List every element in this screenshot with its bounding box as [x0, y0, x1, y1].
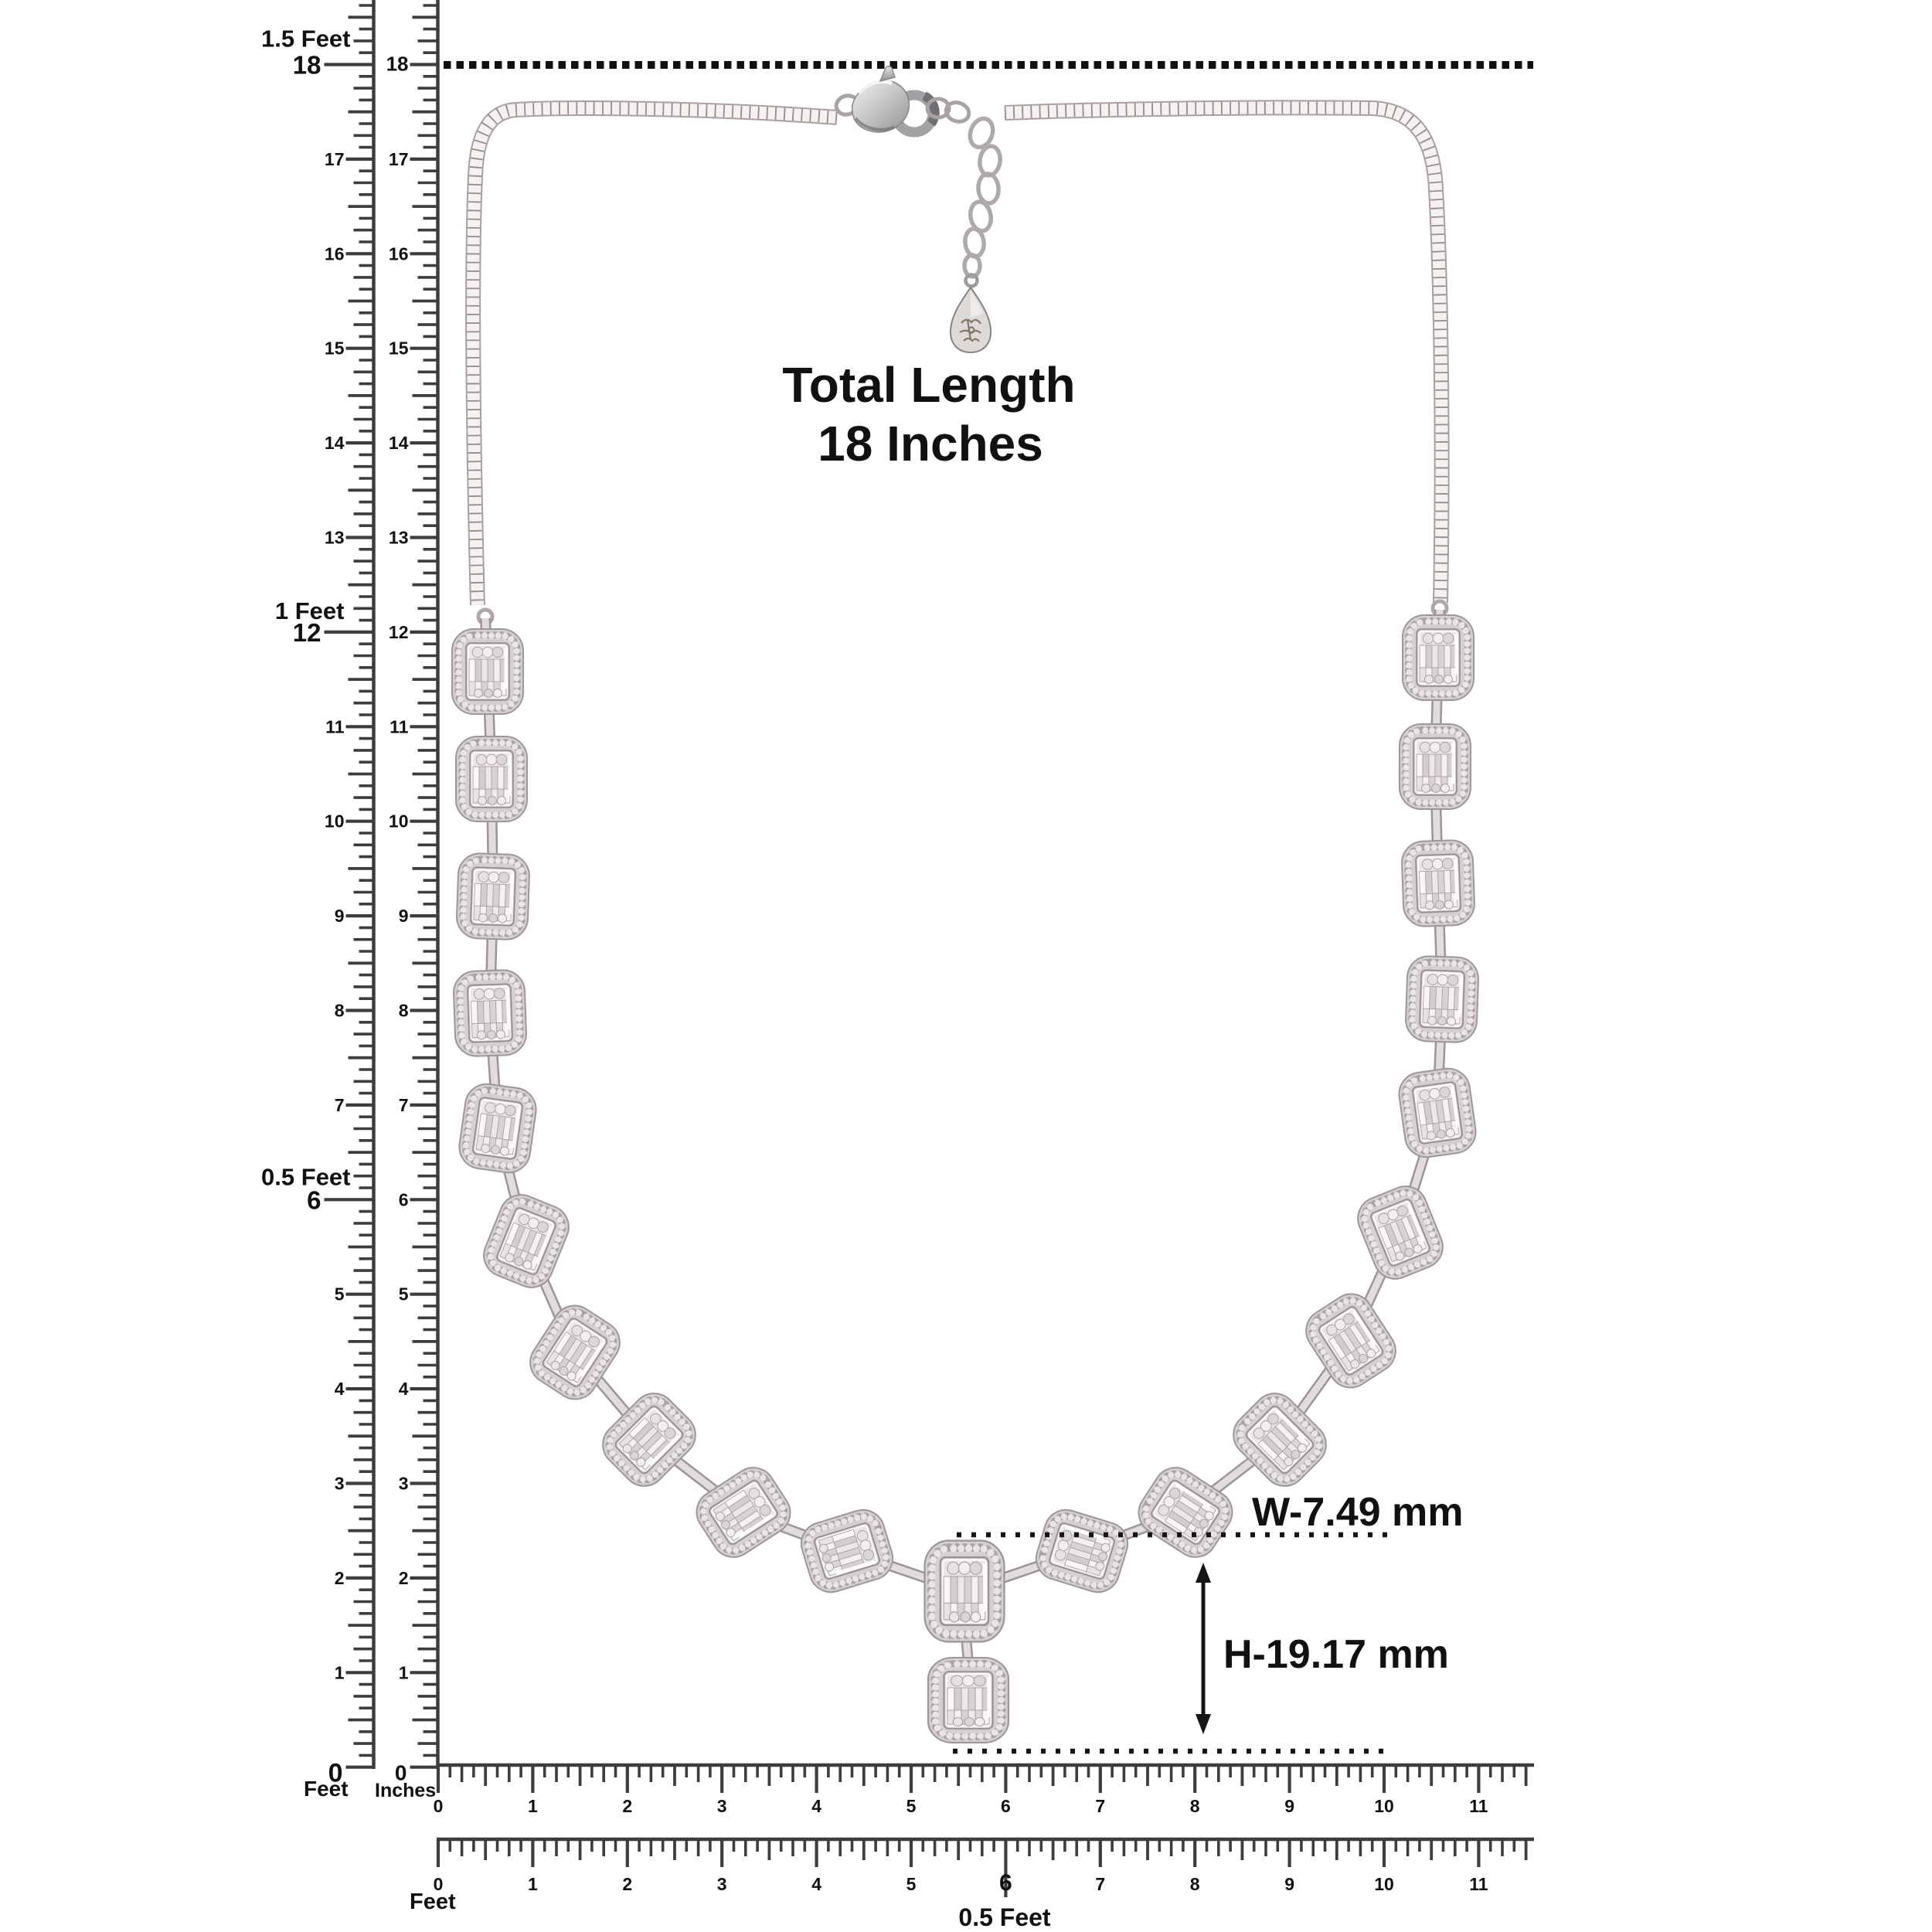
svg-text:13: 13 — [389, 528, 409, 548]
svg-text:5: 5 — [906, 1874, 917, 1894]
svg-text:17: 17 — [389, 149, 409, 169]
svg-text:0.5 Feet: 0.5 Feet — [958, 1903, 1051, 1931]
svg-text:3: 3 — [335, 1474, 345, 1494]
svg-text:7: 7 — [1095, 1796, 1105, 1816]
svg-text:1: 1 — [335, 1662, 345, 1682]
svg-text:Total Length: Total Length — [782, 357, 1075, 413]
svg-text:10: 10 — [325, 811, 345, 832]
svg-text:15: 15 — [389, 338, 409, 359]
svg-text:11: 11 — [325, 716, 345, 736]
svg-text:1: 1 — [399, 1662, 409, 1682]
svg-text:12: 12 — [389, 622, 409, 642]
svg-text:18 Inches: 18 Inches — [818, 416, 1043, 471]
svg-text:1: 1 — [528, 1796, 538, 1816]
svg-text:6: 6 — [999, 1870, 1012, 1896]
svg-text:Feet: Feet — [410, 1889, 456, 1914]
svg-text:16: 16 — [325, 243, 345, 264]
svg-text:2: 2 — [622, 1796, 632, 1816]
svg-text:0.5 Feet: 0.5 Feet — [261, 1163, 350, 1190]
svg-text:2: 2 — [622, 1874, 632, 1894]
svg-text:1 Feet: 1 Feet — [275, 597, 345, 624]
svg-text:9: 9 — [1284, 1874, 1294, 1894]
svg-text:11: 11 — [1469, 1796, 1488, 1816]
svg-text:3: 3 — [399, 1474, 409, 1494]
svg-text:9: 9 — [335, 906, 345, 926]
svg-text:8: 8 — [335, 1001, 345, 1021]
svg-text:8: 8 — [1190, 1874, 1200, 1894]
svg-text:14: 14 — [325, 433, 345, 453]
svg-text:8: 8 — [399, 1001, 409, 1021]
svg-text:2: 2 — [399, 1568, 409, 1588]
svg-text:1.5 Feet: 1.5 Feet — [261, 26, 350, 53]
svg-text:7: 7 — [1095, 1874, 1105, 1894]
svg-text:10: 10 — [1374, 1796, 1394, 1816]
svg-text:7: 7 — [335, 1095, 345, 1115]
svg-text:5: 5 — [399, 1284, 409, 1304]
svg-text:3: 3 — [717, 1796, 727, 1816]
svg-text:0: 0 — [434, 1796, 444, 1816]
svg-text:18: 18 — [386, 53, 409, 76]
svg-text:1: 1 — [528, 1874, 538, 1894]
svg-text:Inches: Inches — [375, 1780, 436, 1801]
svg-text:10: 10 — [389, 811, 409, 832]
svg-text:7: 7 — [399, 1095, 409, 1115]
svg-text:17: 17 — [325, 149, 345, 169]
svg-text:6: 6 — [1001, 1796, 1011, 1816]
svg-text:5: 5 — [906, 1796, 917, 1816]
svg-text:8: 8 — [1190, 1796, 1200, 1816]
svg-text:13: 13 — [325, 528, 345, 548]
svg-text:3: 3 — [717, 1874, 727, 1894]
svg-text:14: 14 — [389, 433, 409, 453]
svg-text:4: 4 — [811, 1874, 821, 1894]
svg-text:5: 5 — [335, 1284, 345, 1304]
svg-text:18: 18 — [293, 51, 321, 80]
svg-text:4: 4 — [399, 1379, 409, 1399]
svg-text:10: 10 — [1374, 1874, 1394, 1894]
svg-text:11: 11 — [1469, 1874, 1488, 1894]
svg-text:6: 6 — [399, 1189, 409, 1209]
svg-text:H-19.17 mm: H-19.17 mm — [1223, 1632, 1449, 1677]
svg-text:16: 16 — [389, 243, 409, 264]
svg-text:11: 11 — [389, 716, 409, 736]
svg-text:W-7.49 mm: W-7.49 mm — [1252, 1490, 1463, 1535]
svg-text:4: 4 — [811, 1796, 821, 1816]
svg-text:2: 2 — [335, 1568, 345, 1588]
svg-text:Feet: Feet — [304, 1777, 349, 1801]
svg-text:9: 9 — [1284, 1796, 1294, 1816]
svg-text:15: 15 — [325, 338, 345, 359]
svg-text:9: 9 — [399, 906, 409, 926]
svg-text:4: 4 — [335, 1379, 345, 1399]
